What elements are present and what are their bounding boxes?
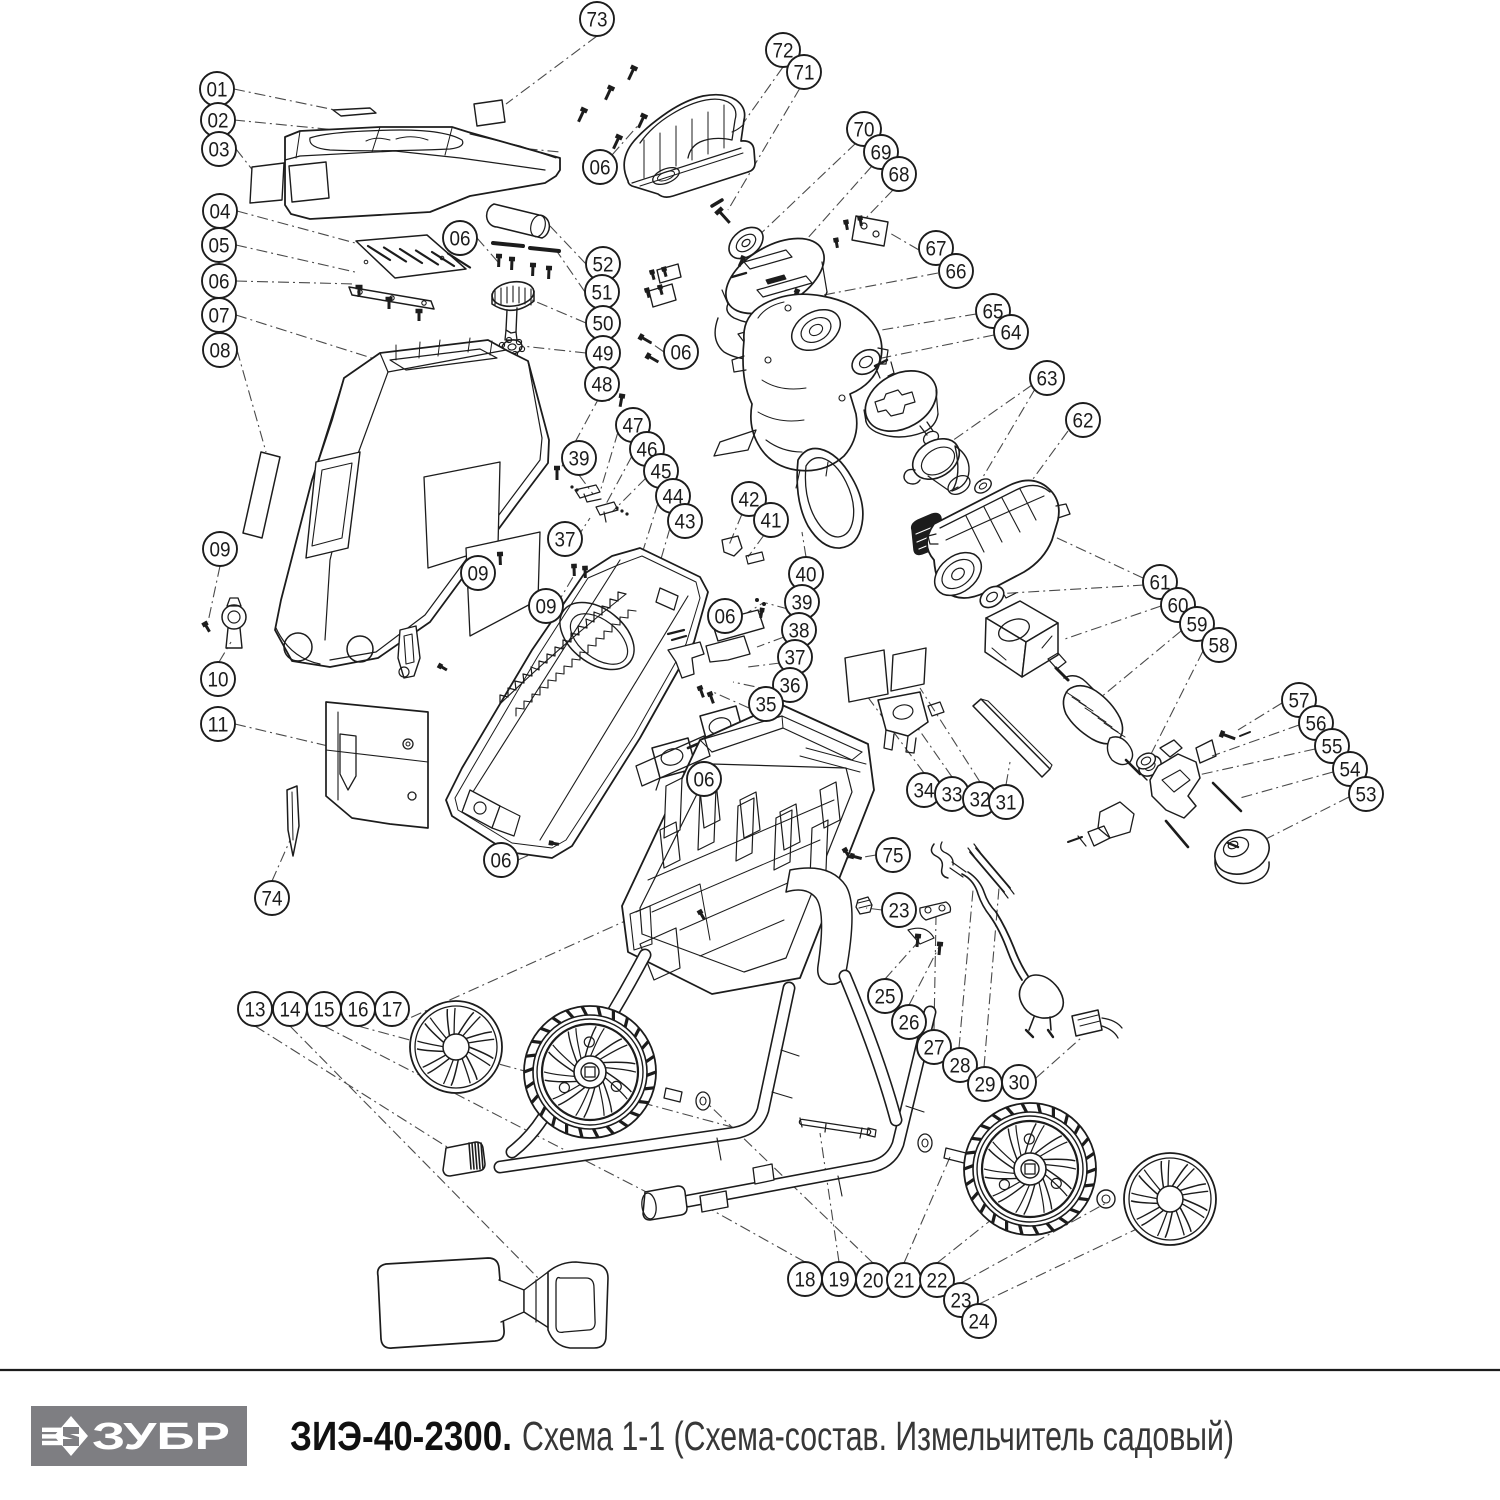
svg-text:19: 19 [829, 1269, 850, 1292]
svg-text:06: 06 [450, 228, 471, 251]
svg-text:39: 39 [569, 448, 590, 471]
svg-text:37: 37 [785, 647, 806, 670]
svg-text:06: 06 [671, 342, 692, 365]
svg-text:21: 21 [894, 1270, 915, 1293]
svg-text:64: 64 [1001, 322, 1022, 345]
svg-text:20: 20 [863, 1270, 884, 1293]
svg-text:67: 67 [926, 238, 947, 261]
svg-text:ЗИЭ-40-2300.: ЗИЭ-40-2300. [290, 1413, 512, 1459]
svg-text:25: 25 [875, 986, 896, 1009]
svg-text:48: 48 [592, 374, 613, 397]
svg-text:01: 01 [207, 79, 228, 102]
svg-text:10: 10 [208, 669, 229, 692]
svg-text:08: 08 [210, 340, 231, 363]
svg-text:06: 06 [491, 850, 512, 873]
svg-text:06: 06 [590, 157, 611, 180]
svg-text:24: 24 [969, 1311, 990, 1334]
svg-text:02: 02 [208, 110, 229, 133]
svg-text:13: 13 [245, 999, 266, 1022]
svg-text:06: 06 [209, 271, 230, 294]
svg-text:23: 23 [889, 900, 910, 923]
svg-text:52: 52 [593, 254, 614, 277]
svg-text:66: 66 [946, 261, 967, 284]
svg-text:50: 50 [593, 313, 614, 336]
svg-text:35: 35 [756, 694, 777, 717]
svg-text:31: 31 [996, 792, 1017, 815]
svg-text:15: 15 [314, 999, 335, 1022]
svg-text:75: 75 [883, 845, 904, 868]
svg-text:58: 58 [1209, 635, 1230, 658]
svg-text:63: 63 [1037, 368, 1058, 391]
svg-text:53: 53 [1356, 784, 1377, 807]
svg-text:33: 33 [942, 784, 963, 807]
svg-text:37: 37 [555, 529, 576, 552]
svg-text:26: 26 [899, 1012, 920, 1035]
svg-text:18: 18 [795, 1269, 816, 1292]
svg-text:09: 09 [210, 539, 231, 562]
svg-text:09: 09 [468, 563, 489, 586]
svg-text:72: 72 [773, 40, 794, 63]
svg-text:34: 34 [914, 780, 935, 803]
svg-text:49: 49 [593, 343, 614, 366]
svg-text:73: 73 [587, 9, 608, 32]
svg-text:16: 16 [348, 999, 369, 1022]
svg-text:11: 11 [208, 714, 229, 737]
svg-text:03: 03 [209, 139, 230, 162]
svg-text:38: 38 [789, 620, 810, 643]
svg-text:51: 51 [592, 282, 613, 305]
svg-text:74: 74 [262, 888, 283, 911]
svg-text:42: 42 [739, 489, 760, 512]
svg-text:07: 07 [209, 305, 230, 328]
svg-text:14: 14 [280, 999, 301, 1022]
svg-text:06: 06 [715, 606, 736, 629]
svg-text:36: 36 [780, 675, 801, 698]
svg-text:27: 27 [924, 1037, 945, 1060]
svg-text:54: 54 [1340, 759, 1361, 782]
svg-text:04: 04 [210, 201, 231, 224]
svg-text:41: 41 [761, 510, 782, 533]
svg-text:40: 40 [796, 564, 817, 587]
svg-text:28: 28 [950, 1055, 971, 1078]
svg-text:43: 43 [675, 511, 696, 534]
svg-text:68: 68 [889, 164, 910, 187]
svg-text:32: 32 [970, 789, 991, 812]
svg-text:62: 62 [1073, 410, 1094, 433]
svg-text:71: 71 [794, 62, 815, 85]
svg-text:05: 05 [209, 235, 230, 258]
svg-text:39: 39 [792, 592, 813, 615]
svg-text:30: 30 [1009, 1072, 1030, 1095]
svg-text:22: 22 [927, 1270, 948, 1293]
svg-text:17: 17 [382, 999, 403, 1022]
svg-text:09: 09 [536, 596, 557, 619]
svg-text:06: 06 [694, 769, 715, 792]
svg-text:29: 29 [975, 1074, 996, 1097]
svg-text:Схема 1-1 (Схема-состав. Измел: Схема 1-1 (Схема-состав. Измельчитель са… [522, 1413, 1234, 1459]
svg-text:ЗУБР: ЗУБР [92, 1416, 230, 1458]
svg-text:59: 59 [1187, 614, 1208, 637]
